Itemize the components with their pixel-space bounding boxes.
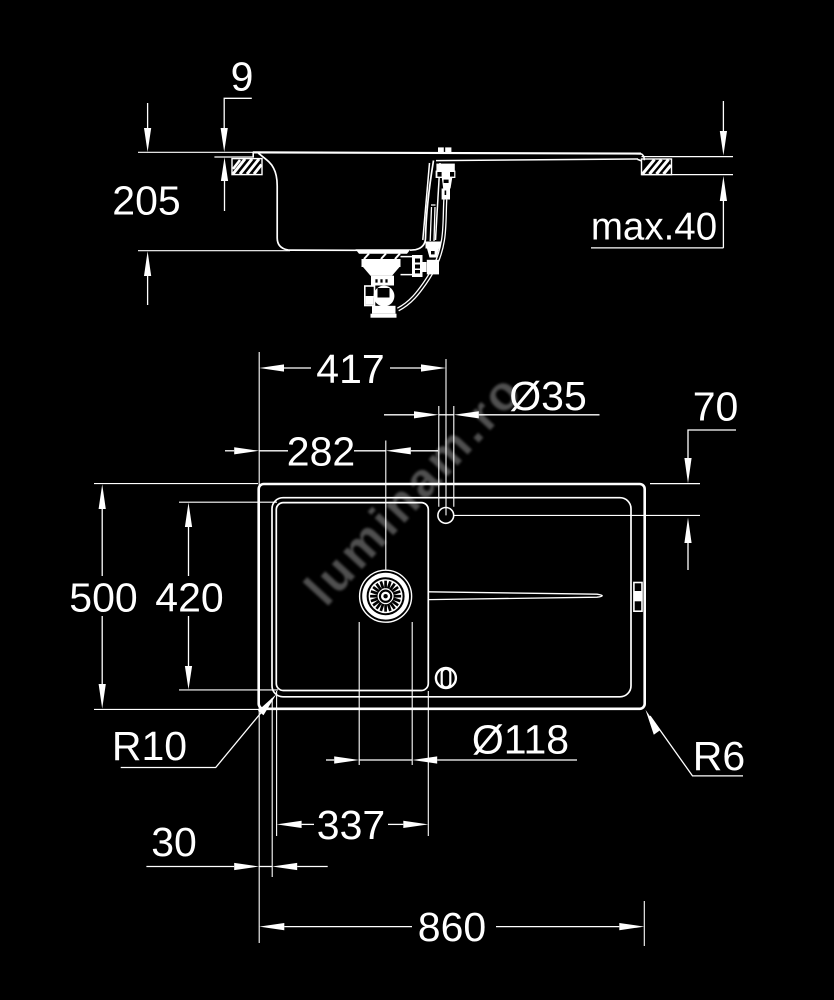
svg-text:R10: R10 [112,723,187,769]
svg-text:70: 70 [693,384,739,430]
svg-text:860: 860 [418,904,486,950]
svg-text:205: 205 [112,178,180,224]
svg-text:282: 282 [287,429,355,475]
svg-text:Ø118: Ø118 [472,717,569,763]
svg-text:9: 9 [231,53,254,99]
svg-text:417: 417 [316,346,384,392]
svg-text:30: 30 [151,819,197,865]
svg-text:337: 337 [317,802,385,848]
svg-text:R6: R6 [693,733,745,779]
svg-text:500: 500 [69,575,137,621]
svg-text:420: 420 [155,575,223,621]
svg-text:max.40: max.40 [591,206,717,249]
svg-text:Ø35: Ø35 [509,373,587,419]
